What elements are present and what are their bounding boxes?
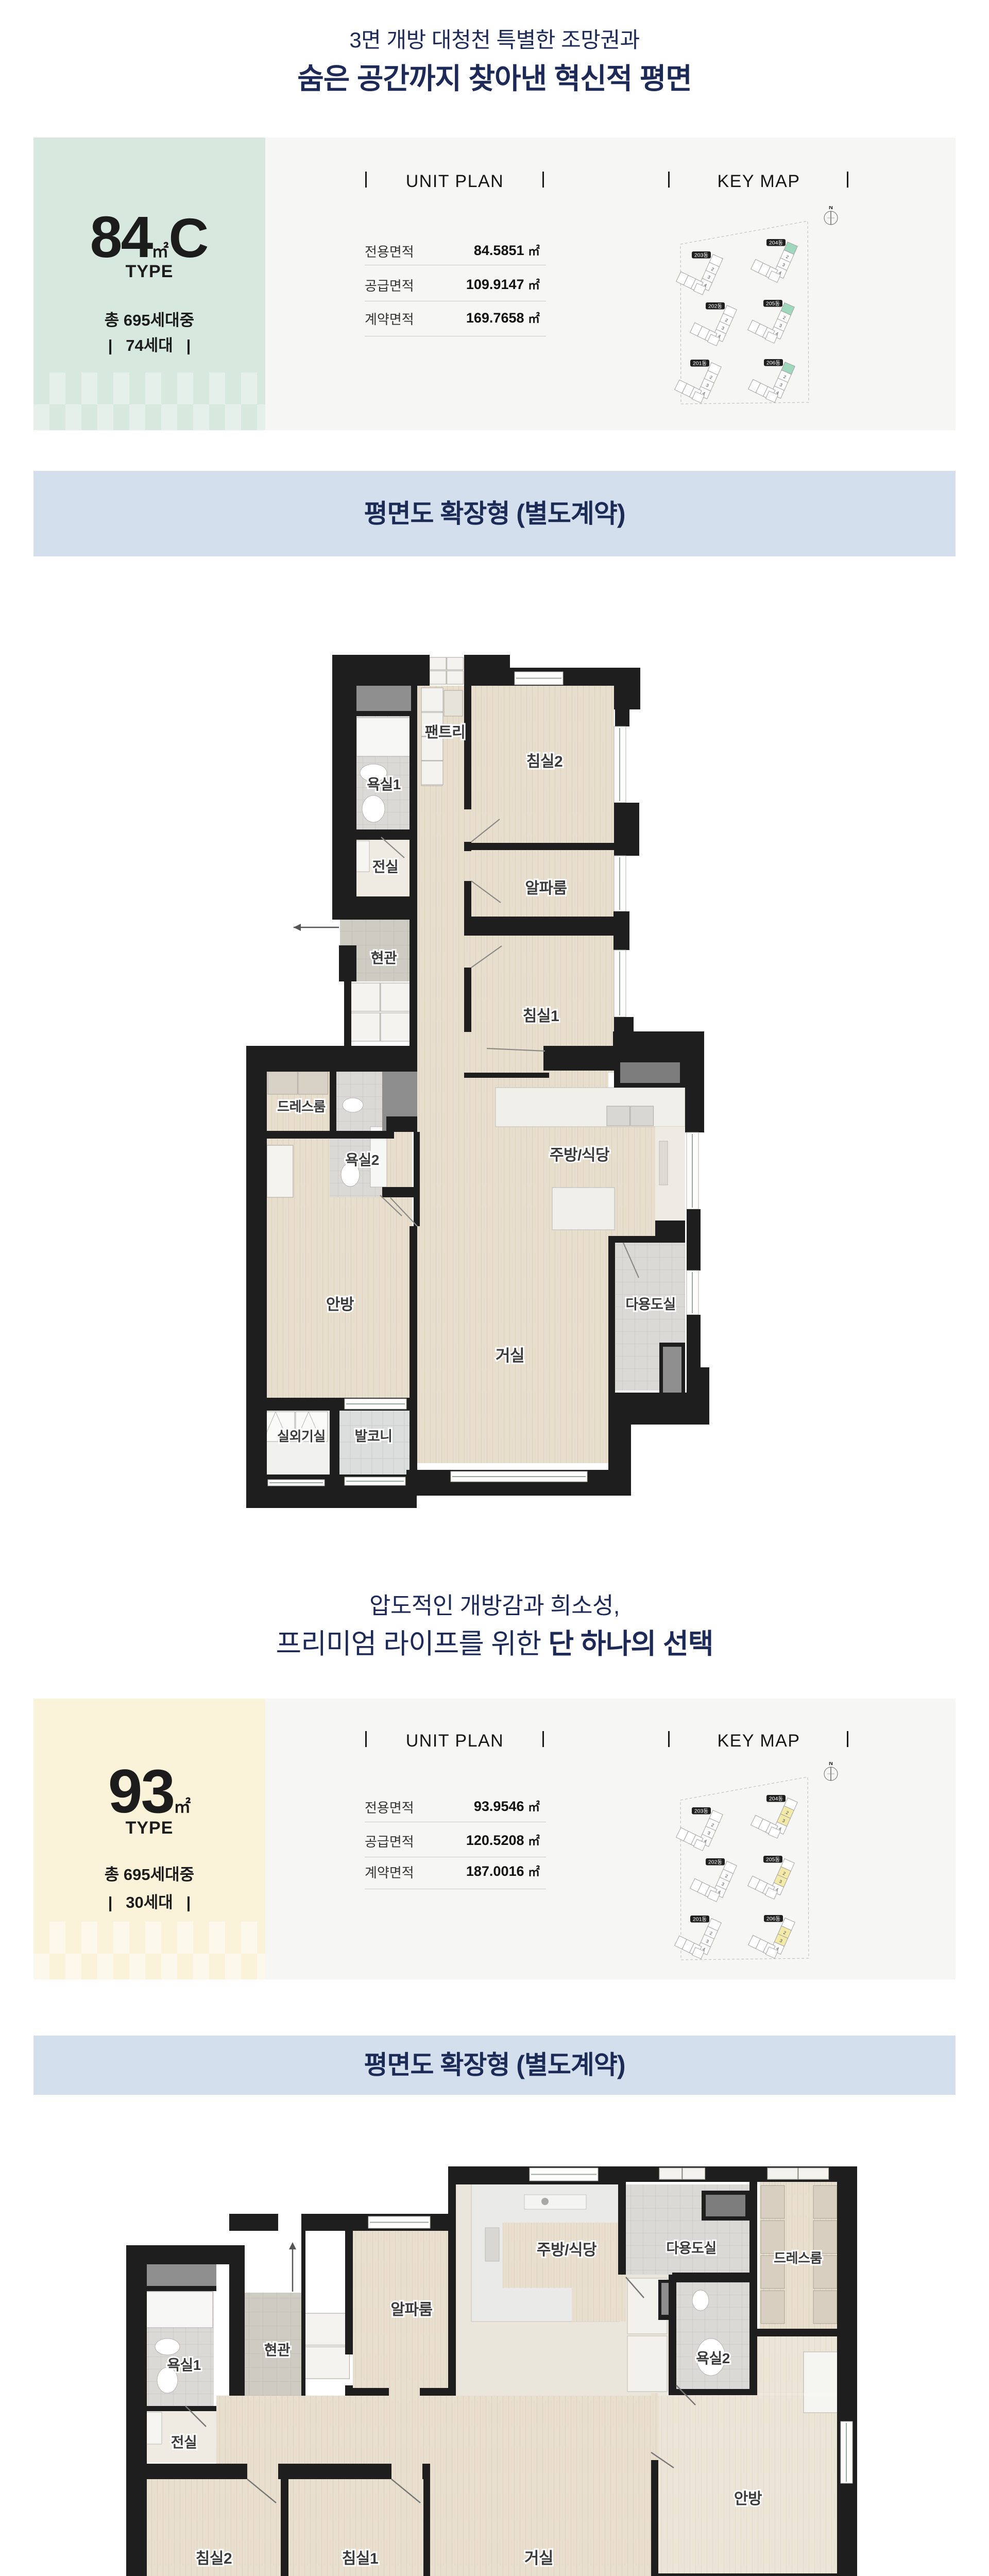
svg-text:205동: 205동 xyxy=(766,1857,780,1863)
svg-text:거실: 거실 xyxy=(524,2549,553,2567)
svg-text:거실: 거실 xyxy=(496,1347,524,1365)
svg-text:드레스룸: 드레스룸 xyxy=(774,2250,822,2266)
svg-text:알파룸: 알파룸 xyxy=(390,2301,432,2318)
svg-text:안방: 안방 xyxy=(734,2490,762,2507)
svg-text:침실1: 침실1 xyxy=(523,1008,559,1025)
svg-text:욕실2: 욕실2 xyxy=(696,2350,730,2366)
svg-text:욕실1: 욕실1 xyxy=(167,2357,201,2373)
svg-text:현관: 현관 xyxy=(264,2342,291,2358)
svg-text:알파룸: 알파룸 xyxy=(525,880,567,897)
svg-text:발코니: 발코니 xyxy=(354,1429,392,1444)
svg-text:다용도실: 다용도실 xyxy=(625,1297,675,1312)
svg-text:204동: 204동 xyxy=(769,240,783,246)
svg-text:전실: 전실 xyxy=(171,2434,197,2450)
svg-text:204동: 204동 xyxy=(769,1796,783,1802)
svg-text:드레스룸: 드레스룸 xyxy=(277,1099,326,1114)
svg-text:침실2: 침실2 xyxy=(196,2550,232,2567)
svg-text:주방/식당: 주방/식당 xyxy=(537,2242,597,2259)
svg-text:전실: 전실 xyxy=(372,859,399,875)
svg-text:실외기실: 실외기실 xyxy=(277,1429,326,1444)
svg-text:안방: 안방 xyxy=(326,1296,354,1313)
svg-text:202동: 202동 xyxy=(708,1859,723,1866)
svg-text:206동: 206동 xyxy=(766,1916,781,1922)
svg-text:N: N xyxy=(829,206,833,211)
svg-text:202동: 202동 xyxy=(708,303,723,310)
svg-text:201동: 201동 xyxy=(693,361,707,367)
svg-text:팬트리: 팬트리 xyxy=(425,724,466,741)
svg-text:침실1: 침실1 xyxy=(342,2550,378,2567)
svg-text:206동: 206동 xyxy=(766,360,781,366)
svg-text:N: N xyxy=(829,1762,833,1767)
svg-text:다용도실: 다용도실 xyxy=(666,2241,716,2256)
svg-text:욕실1: 욕실1 xyxy=(367,776,401,792)
svg-text:주방/식당: 주방/식당 xyxy=(550,1147,610,1164)
svg-text:203동: 203동 xyxy=(694,1808,709,1815)
svg-text:현관: 현관 xyxy=(371,950,397,966)
svg-text:201동: 201동 xyxy=(693,1917,707,1923)
svg-text:205동: 205동 xyxy=(766,301,780,307)
svg-text:203동: 203동 xyxy=(694,252,709,259)
svg-text:욕실2: 욕실2 xyxy=(345,1152,379,1168)
svg-text:침실2: 침실2 xyxy=(526,753,562,770)
